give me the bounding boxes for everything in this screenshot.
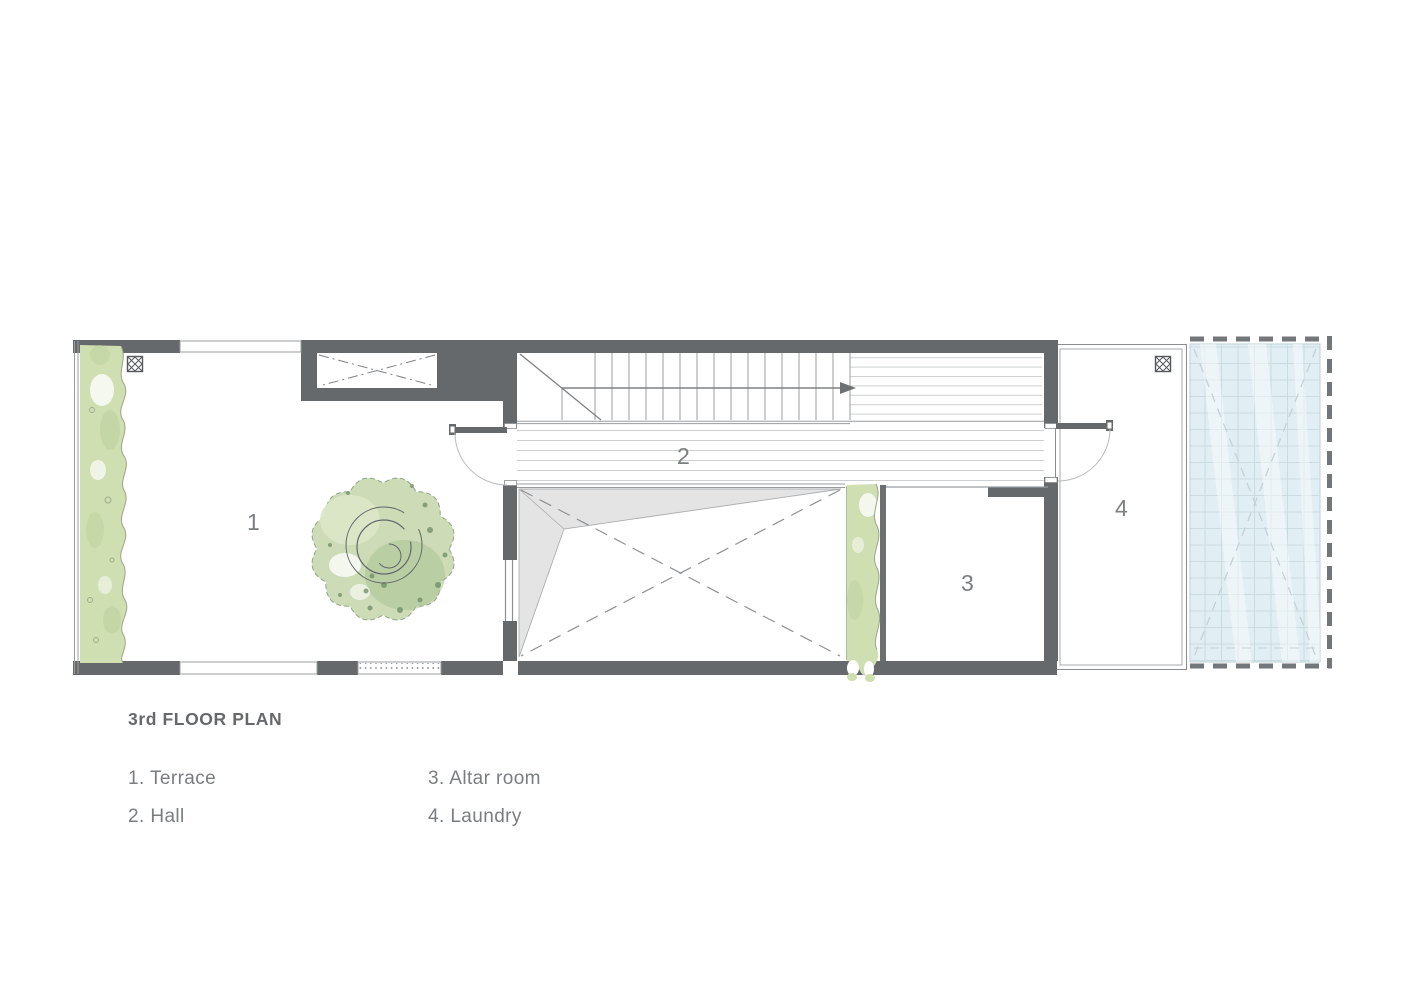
parapet-opening-top [180,341,301,352]
room-number-terrace: 1 [247,509,260,535]
room-number-laundry: 4 [1115,495,1128,521]
skylight-glass-roof [1190,336,1332,668]
staircase [520,353,856,420]
stair-up-arrow-icon [562,382,856,394]
stair-break-line [520,354,601,420]
vent-grille [358,662,441,674]
legend-item-altar-room: 3. Altar room [428,768,541,790]
floor-plan-drawing: 1 2 3 4 [0,0,1415,1000]
planter-strip-middle [847,484,880,682]
legend-item-laundry: 4. Laundry [428,806,522,828]
tree-symbol [312,478,454,620]
void-area [517,484,845,657]
page-title: 3rd FLOOR PLAN [128,709,282,730]
parapet-opening-bottom [180,662,317,674]
door-terrace-hall [449,424,507,485]
hall-deck-floor [517,353,1044,484]
window [503,556,517,625]
room-number-hall: 2 [677,443,690,469]
floor-drain-icon [1156,357,1171,372]
legend-item-hall: 2. Hall [128,806,185,828]
planter-strip-left [80,345,127,663]
legend-item-terrace: 1. Terrace [128,768,216,790]
floor-plan-page: 1 2 3 4 3rd FLOOR PLAN 1. Terrace 2. Hal… [0,0,1415,1000]
door-swing-arc [455,433,507,485]
floor-drain-icon [128,357,143,372]
room-number-altar: 3 [961,570,974,596]
